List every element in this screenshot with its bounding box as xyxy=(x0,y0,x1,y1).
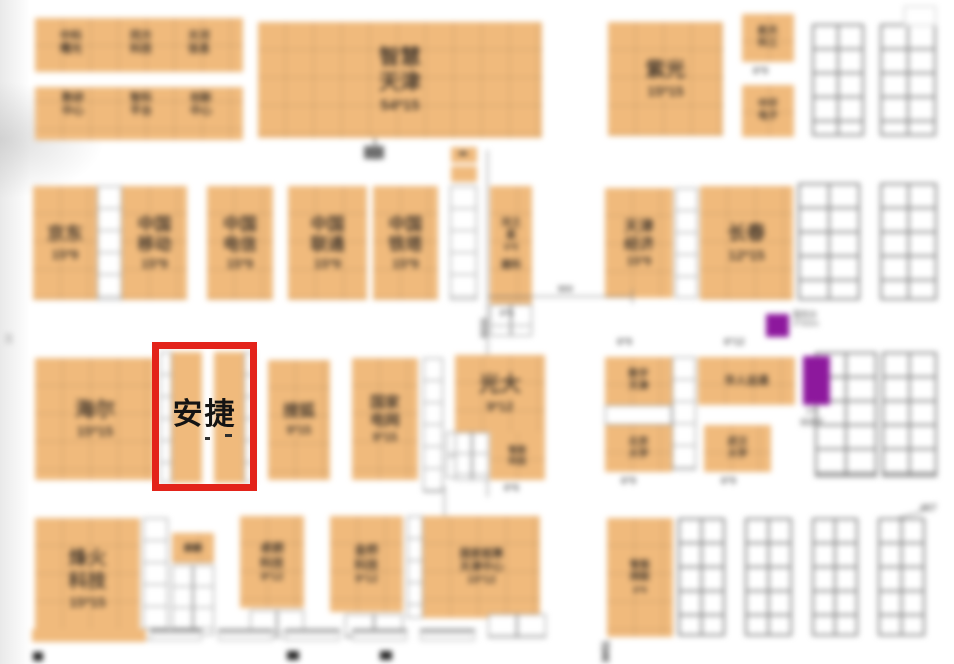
empty-booth-grid xyxy=(812,518,858,636)
booth-hangtian: 航天科工 xyxy=(742,14,794,62)
booth-size: 15*9 xyxy=(314,256,341,271)
booth-name: 武汉大学 xyxy=(726,437,750,461)
connector-block xyxy=(364,146,384,159)
booth-size: 12*15 xyxy=(728,247,765,263)
partial-booth xyxy=(285,629,340,641)
booth-size: 54*15 xyxy=(380,97,419,114)
booth-china-unicom: 中国联通 15*9 xyxy=(288,186,367,300)
booth-size: 9*12 xyxy=(487,399,514,414)
empty-booth-grid xyxy=(880,183,937,300)
connector-line xyxy=(444,486,445,520)
empty-booth-grid xyxy=(880,24,936,136)
booth-label-c3: 创新中心 xyxy=(188,92,214,118)
aisle-cells xyxy=(605,405,672,425)
aisle-cells xyxy=(675,188,698,298)
size-label: 6*9 xyxy=(617,337,632,348)
booth-china-mobile: 中国移动 15*9 xyxy=(122,186,187,300)
booth-size: 15*9 xyxy=(227,256,254,271)
empty-booth-grid xyxy=(882,352,937,477)
booth-size: 15*9 xyxy=(52,247,79,262)
booth-china-telecom: 中国电信 15*9 xyxy=(207,186,273,300)
booth-size: 9*15 xyxy=(287,423,312,437)
empty-booth-grid xyxy=(878,518,925,636)
booth-shuzi-tianjin: 数字天津 xyxy=(605,357,672,405)
booth-name: 北京大学 xyxy=(627,437,651,461)
booth-sohu: 搜狐 9*15 xyxy=(268,360,330,480)
booth-size: 15*9 xyxy=(627,254,652,268)
aisle-cells xyxy=(407,516,423,618)
empty-booth-grid xyxy=(812,24,864,136)
booth-jingdong: 京东 15*9 xyxy=(33,186,97,300)
size-label: 6*9 xyxy=(721,476,736,487)
booth-chaosuan: 国家超算天津中心 15*12 xyxy=(423,516,540,618)
booth-name: 国家电网 xyxy=(368,394,402,429)
empty-booth-grid xyxy=(678,518,725,636)
booth-name: 智能科技 xyxy=(508,445,528,466)
booth-ziguang: 紫光 15*15 xyxy=(608,22,723,136)
booth-name: 长春 xyxy=(727,223,765,245)
booth-label-c2: 智科平台 xyxy=(128,92,154,118)
partial-booth xyxy=(150,629,202,641)
booth-label-sugon: 中科曙光 xyxy=(58,30,84,56)
edge-mark xyxy=(380,651,392,660)
booth-zhuolang: 卓朗科技 9*12 xyxy=(240,516,304,608)
booth-name: 光大 xyxy=(479,373,521,398)
booth-name: 数字天津 xyxy=(627,369,651,393)
aisle-strip xyxy=(35,72,243,87)
booth-qilin: 麒麟 xyxy=(172,533,214,563)
booth-label-c1: 数研中心 xyxy=(60,92,86,118)
booth-name: 京东 xyxy=(47,224,83,245)
booth-size: 15*15 xyxy=(647,83,684,99)
dimension-label-8000: 8000 xyxy=(479,318,489,338)
partial-booth xyxy=(420,629,475,641)
booth-name: 卓朗科技 xyxy=(258,541,286,569)
booth-mark xyxy=(225,434,232,437)
booth-size: 15*9 xyxy=(141,256,168,271)
booth-name: 天津经济 xyxy=(622,218,656,253)
dimension-tick xyxy=(632,289,633,304)
purple-highlight-block xyxy=(766,314,789,337)
aisle-cells xyxy=(143,518,168,640)
booth-name: 海尔 xyxy=(75,399,115,423)
purple-highlight-block xyxy=(803,356,830,405)
partial-booth xyxy=(32,629,146,642)
booth-name: 国家超算天津中心 xyxy=(458,548,506,574)
mini-booth-mark xyxy=(459,152,467,155)
aisle-cells xyxy=(450,186,477,300)
booth-size: 9*12 xyxy=(355,573,378,585)
small-cells xyxy=(488,614,546,638)
booth-name: 烽火科技 xyxy=(67,548,109,593)
booth-size: 15*15 xyxy=(69,594,106,610)
aisle-strip xyxy=(243,18,258,140)
booth-haier: 海尔 15*15 xyxy=(35,358,155,480)
small-cells xyxy=(455,432,489,480)
booth-label-tongfang: 同方科技 xyxy=(128,30,154,56)
dimension-line-horizontal xyxy=(487,296,633,297)
booth-size: 15*12 xyxy=(467,574,496,586)
booth-mark xyxy=(205,437,210,440)
booth-smart-tianjin: 智慧天津 54*15 xyxy=(258,22,542,138)
floor-plan-map: 中科曙光 同方科技 天河信息 数研中心 智科平台 创新中心 智慧天津 54*15… xyxy=(0,0,954,664)
booth-name: 金桥科技 xyxy=(353,543,381,571)
purple-caption: 体验区 xyxy=(800,417,824,428)
booth-name: 中环电子 xyxy=(757,99,779,123)
size-label: 6*6 xyxy=(500,308,514,318)
aisle-cells xyxy=(672,357,696,470)
size-label: 6*9 xyxy=(621,476,636,487)
empty-booth-grid xyxy=(798,183,860,300)
purple-caption: 3*9 xyxy=(806,407,818,416)
booth-name: 紫光 xyxy=(646,59,686,83)
edge-mark xyxy=(33,652,43,661)
faint-cell xyxy=(904,6,936,26)
booth-jinqiao: 金桥科技 9*12 xyxy=(330,516,403,612)
booth-guangda: 光大 9*12 xyxy=(455,355,545,432)
booth-name: 中国联通 xyxy=(310,215,346,255)
booth-name: 航天科工 xyxy=(757,26,779,50)
booth-size: 6*9 xyxy=(633,585,647,595)
booth-name: 智慧天津 xyxy=(376,46,424,96)
booth-name: 河之星 xyxy=(500,218,522,242)
booth-name: 中国铁塔 xyxy=(388,215,424,255)
booth-name: 智能网联 xyxy=(628,560,652,584)
booth-size: 15*15 xyxy=(77,423,114,439)
partial-booth xyxy=(352,629,407,641)
dimension-label-800: 800 xyxy=(558,284,573,294)
aisle-cells xyxy=(423,358,443,492)
dimension-label-467: 467 xyxy=(920,503,937,514)
dimension-label-3651: 3651 xyxy=(601,641,612,663)
mini-booth xyxy=(451,147,477,163)
booth-name: 华人运通 xyxy=(725,375,769,388)
booth-huaren: 华人运通 xyxy=(698,357,795,405)
booth-size: 6*9 xyxy=(504,242,518,252)
booth-zhonghuan: 中环电子 xyxy=(742,85,794,137)
booth-wuhan-daxue: 武汉大学 xyxy=(704,425,771,472)
booth-wangluo: 智能网联 6*9 xyxy=(607,518,673,637)
mini-booth xyxy=(451,166,477,182)
booth-label-tianhe: 天河信息 xyxy=(186,30,212,56)
edge-mark xyxy=(287,651,299,660)
booth-name: 建科 xyxy=(500,260,522,272)
purple-caption: 3*3/2m xyxy=(793,319,819,328)
booth-gd-sub: 智能科技 xyxy=(490,432,545,480)
booth-changchun: 长春 12*15 xyxy=(700,186,793,300)
size-label: 6*12 xyxy=(724,337,745,348)
booth-size: 9*15 xyxy=(373,430,398,444)
booth-hezhixing: 河之星 6*9 建科 xyxy=(490,186,532,304)
booth-state-grid: 国家电网 9*15 xyxy=(352,358,418,480)
dimension-label-10: 10 xyxy=(4,334,14,344)
booth-name: 中国移动 xyxy=(137,215,173,255)
booth-size: 9*12 xyxy=(261,571,284,583)
booth-china-tower: 中国铁塔 15*9 xyxy=(373,186,438,300)
booth-size: 15*9 xyxy=(392,256,419,271)
booth-name: 麒麟 xyxy=(184,543,202,554)
blurred-map-layer: 中科曙光 同方科技 天河信息 数研中心 智科平台 创新中心 智慧天津 54*15… xyxy=(0,0,954,664)
booth-name: 中国电信 xyxy=(222,215,258,255)
partial-booth xyxy=(218,629,273,641)
booth-fenghuo: 烽火科技 15*15 xyxy=(35,518,140,640)
empty-booth-grid xyxy=(745,518,792,636)
aisle-cells xyxy=(97,186,122,300)
booth-tianjin-jingji: 天津经济 15*9 xyxy=(605,188,673,298)
highlighted-booth-label: 安捷 xyxy=(160,389,249,433)
booth-name: 搜狐 xyxy=(283,403,315,422)
small-cells xyxy=(172,565,214,635)
size-label: 6*6 xyxy=(504,483,519,494)
booth-beijing-daxue: 北京大学 xyxy=(605,425,672,472)
size-label: 6*9 xyxy=(753,66,768,77)
